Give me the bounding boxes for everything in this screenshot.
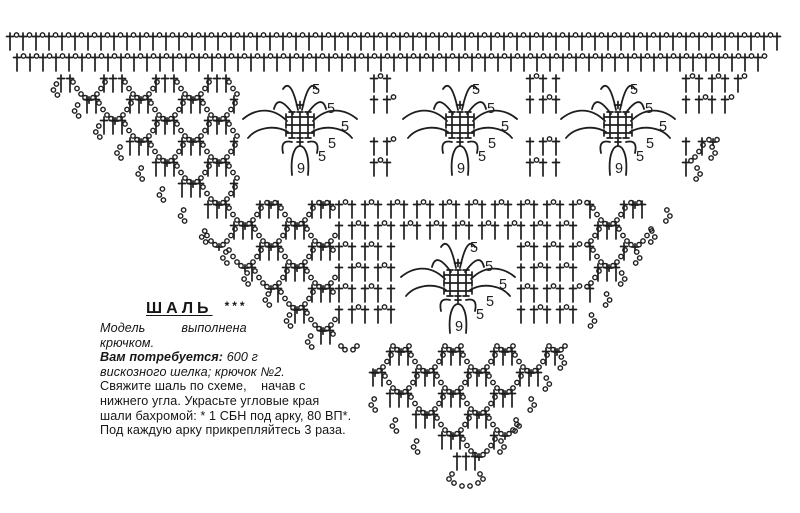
stitch-count-label: 5 [328,136,336,152]
stitch-count-label: 5 [472,82,480,98]
pattern-title: ШАЛЬ [146,300,213,317]
stitch-count-label: 5 [341,119,349,135]
difficulty-stars: *** [225,299,248,313]
stitch-count-label: 5 [318,149,326,165]
materials-value: 600 г [223,350,258,364]
instruction-line: Под каждую арку прикрепляйтесь 3 раза. [100,423,386,438]
instruction-line: шали бахромой: * 1 СБН под арку, 80 ВП*. [100,409,386,424]
stitch-count-label: 5 [478,149,486,165]
stitch-count-label: 5 [499,277,507,293]
stitch-count-label: 5 [327,101,335,117]
stitch-count-label: 5 [659,119,667,135]
stitch-count-label: 5 [501,119,509,135]
stitch-count-label: 5 [646,136,654,152]
instruction-line: Свяжите шаль по схеме, начав с [100,379,386,394]
pattern-title-row: ШАЛЬ*** [146,299,386,318]
instruction-line: Модель выполнена [100,321,386,336]
stitch-count-label: 5 [312,82,320,98]
pattern-instructions: ШАЛЬ*** Модель выполнена крючком. Вам по… [100,299,386,438]
stitch-count-label: 5 [636,149,644,165]
stitch-count-label: 5 [486,294,494,310]
scanned-pattern-page: 555559555559555559555559 ШАЛЬ*** Модель … [0,0,800,513]
stitch-count-label: 9 [457,161,465,177]
stitch-count-label: 9 [455,319,463,335]
materials-label: Вам потребуется: [100,350,223,364]
stitch-count-label: 5 [476,307,484,323]
materials-line: Вам потребуется: 600 г [100,350,386,365]
stitch-count-label: 5 [487,101,495,117]
stitch-count-label: 5 [488,136,496,152]
stitch-count-label: 9 [297,161,305,177]
stitch-count-label: 5 [485,259,493,275]
instruction-line: вискозного шелка; крючок №2. [100,365,386,380]
instruction-line: нижнего угла. Украсьте угловые края [100,394,386,409]
stitch-count-label: 9 [615,161,623,177]
stitch-count-label: 5 [470,240,478,256]
instruction-line: крючком. [100,336,386,351]
stitch-count-label: 5 [645,101,653,117]
stitch-count-label: 5 [630,82,638,98]
